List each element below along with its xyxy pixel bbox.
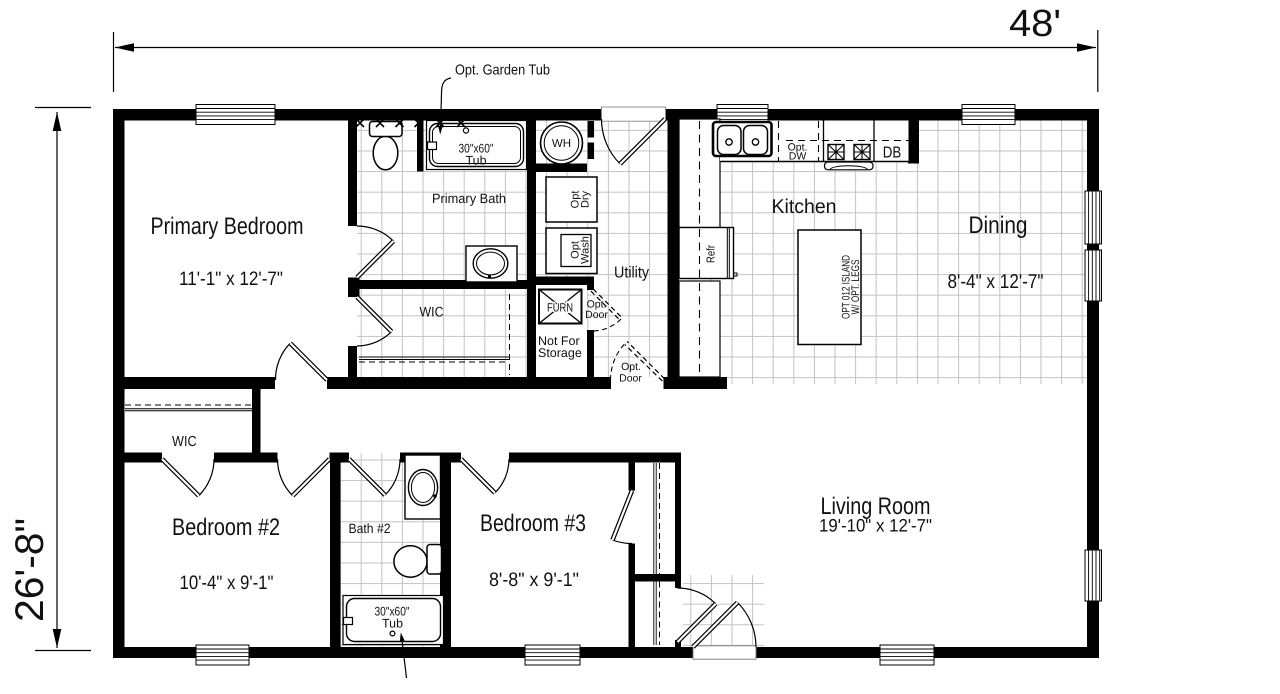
svg-text:DB: DB [883,145,902,162]
svg-text:Bath #2: Bath #2 [349,521,391,536]
svg-text:Opt.: Opt. [621,361,641,373]
svg-text:Door: Door [619,373,642,385]
svg-text:Bedroom #2: Bedroom #2 [172,514,280,541]
svg-text:W/ OPT. LEGS: W/ OPT. LEGS [850,260,862,315]
svg-text:Dry: Dry [580,190,592,208]
svg-text:Refr: Refr [706,245,718,263]
svg-text:WIC: WIC [420,304,444,320]
svg-text:WIC: WIC [172,434,197,450]
svg-text:Dining: Dining [969,212,1028,239]
svg-text:10'-4" x 9'-1": 10'-4" x 9'-1" [180,572,274,594]
svg-text:19'-10" x 12'-7": 19'-10" x 12'-7" [819,516,932,536]
svg-text:Kitchen: Kitchen [772,196,837,218]
svg-text:8'-8" x 9'-1": 8'-8" x 9'-1" [489,569,579,591]
svg-text:Bedroom #3: Bedroom #3 [480,510,586,537]
svg-text:Wash: Wash [580,236,592,264]
svg-text:Storage: Storage [538,346,582,360]
svg-text:48': 48' [1009,3,1061,45]
svg-text:Tub: Tub [382,617,403,631]
svg-text:FURN: FURN [547,301,573,315]
svg-text:Primary Bath: Primary Bath [432,191,506,206]
svg-text:26'-8": 26'-8" [8,518,52,622]
svg-text:WH: WH [552,138,571,150]
svg-text:Utility: Utility [614,265,649,282]
svg-text:Opt. Garden Tub: Opt. Garden Tub [455,63,550,79]
svg-text:11'-1" x 12'-7": 11'-1" x 12'-7" [179,268,283,290]
svg-text:DW: DW [789,151,807,163]
svg-text:Tub: Tub [466,154,487,168]
svg-text:Primary Bedroom: Primary Bedroom [151,213,304,240]
svg-text:8'-4" x 12'-7": 8'-4" x 12'-7" [948,271,1044,293]
svg-text:Door: Door [585,309,608,321]
